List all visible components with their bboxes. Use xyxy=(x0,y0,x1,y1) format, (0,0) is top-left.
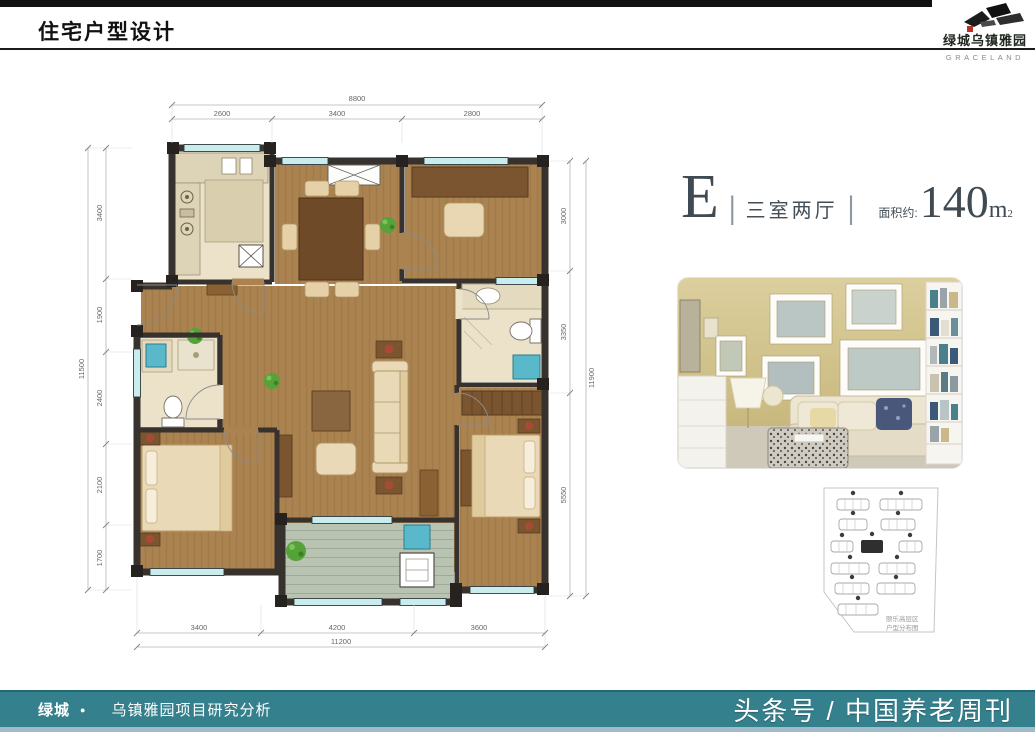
plant-icon xyxy=(380,217,396,233)
balcony-slider xyxy=(312,517,392,524)
footer-watermark: 头条号 / 中国养老周刊 xyxy=(733,691,1013,728)
vanity xyxy=(462,284,542,309)
bullet-icon: ● xyxy=(80,705,85,715)
svg-text:3400: 3400 xyxy=(95,205,104,222)
area-value: 140 xyxy=(920,179,989,225)
svg-text:3000: 3000 xyxy=(559,208,568,225)
svg-text:2600: 2600 xyxy=(214,109,231,118)
cabinet xyxy=(420,470,438,516)
dining-table xyxy=(299,198,363,280)
tv-cabinet xyxy=(461,450,472,506)
yellow-cushion xyxy=(810,408,836,428)
blue-cushion xyxy=(876,398,912,430)
laundry-sink xyxy=(404,525,430,549)
unit-layout: 三室两厅 xyxy=(746,194,838,223)
living-room-photo xyxy=(678,278,962,468)
svg-text:3400: 3400 xyxy=(191,623,208,632)
svg-text:3600: 3600 xyxy=(471,623,488,632)
top-accent-bar xyxy=(0,0,932,7)
floor-plan: 8800 2600 3400 2800 11500 3400 1900 2400… xyxy=(72,85,632,675)
logo-seal xyxy=(967,26,973,32)
area-label: 面积约: xyxy=(878,204,917,221)
plant-icon xyxy=(264,373,280,389)
area-unit: m xyxy=(989,197,1008,224)
logo-roofs-icon xyxy=(964,3,1024,32)
plant-icon xyxy=(286,541,306,561)
balcony xyxy=(400,525,434,587)
svg-text:3350: 3350 xyxy=(559,324,568,341)
svg-text:2100: 2100 xyxy=(95,477,104,494)
svg-text:8800: 8800 xyxy=(349,94,366,103)
logo-sub-text: GRACELAND xyxy=(946,53,1024,62)
title-underline xyxy=(0,48,1035,50)
site-caption-line2: 户型分布图 xyxy=(886,623,919,632)
basin xyxy=(146,344,166,367)
study-desk xyxy=(412,167,528,197)
highlighted-building xyxy=(861,540,883,553)
bookshelf xyxy=(926,282,962,464)
separator: | xyxy=(729,190,736,227)
svg-text:11900: 11900 xyxy=(587,368,596,388)
site-plan: 颐乐高层区 户型分布图 xyxy=(808,474,958,644)
tv-cabinet xyxy=(278,435,292,497)
study-chair xyxy=(444,203,484,237)
svg-text:2800: 2800 xyxy=(464,109,481,118)
sofa xyxy=(372,361,408,473)
coffee-table xyxy=(312,391,350,431)
area-exponent: 2 xyxy=(1007,208,1013,220)
svg-text:3400: 3400 xyxy=(329,109,346,118)
white-cabinet xyxy=(678,376,726,468)
footer-bottom-strip xyxy=(0,727,1035,732)
toilet xyxy=(510,322,532,340)
svg-text:2400: 2400 xyxy=(95,390,104,407)
svg-text:5550: 5550 xyxy=(559,487,568,504)
svg-text:1700: 1700 xyxy=(95,550,104,567)
mirror xyxy=(680,300,700,372)
bedroom-left xyxy=(140,432,232,546)
site-caption-line1: 颐乐高层区 xyxy=(886,614,919,623)
footer-project: 乌镇雅园项目研究分析 xyxy=(111,699,271,720)
page-title: 住宅户型设计 xyxy=(38,16,176,46)
footer-left: 绿城 ● 乌镇雅园项目研究分析 xyxy=(38,699,271,720)
basin xyxy=(476,288,500,304)
unit-info: E | 三室两厅 | 面积约: 140 m 2 xyxy=(681,166,1013,228)
slide: 住宅户型设计 绿城乌镇雅园 GRACELAND E | 三室两厅 | 面积约: … xyxy=(0,0,1035,732)
master-bedroom xyxy=(461,391,542,533)
footer-bar: 绿城 ● 乌镇雅园项目研究分析 头条号 / 中国养老周刊 xyxy=(0,690,1035,727)
brand-logo: 绿城乌镇雅园 GRACELAND xyxy=(936,2,1034,64)
shower-tray xyxy=(513,355,540,379)
kitchen-sink xyxy=(222,158,236,174)
interior-photo xyxy=(678,278,962,468)
armchair xyxy=(316,443,356,475)
unit-letter: E xyxy=(681,166,719,228)
separator: | xyxy=(848,190,855,227)
svg-text:1900: 1900 xyxy=(95,307,104,324)
toilet xyxy=(164,396,182,418)
footer-brand: 绿城 xyxy=(38,699,70,720)
logo-brand-text: 绿城乌镇雅园 xyxy=(943,33,1027,48)
svg-text:4200: 4200 xyxy=(329,623,346,632)
svg-text:11200: 11200 xyxy=(331,637,351,646)
svg-text:11500: 11500 xyxy=(77,359,86,379)
kitchen-island xyxy=(205,180,263,242)
